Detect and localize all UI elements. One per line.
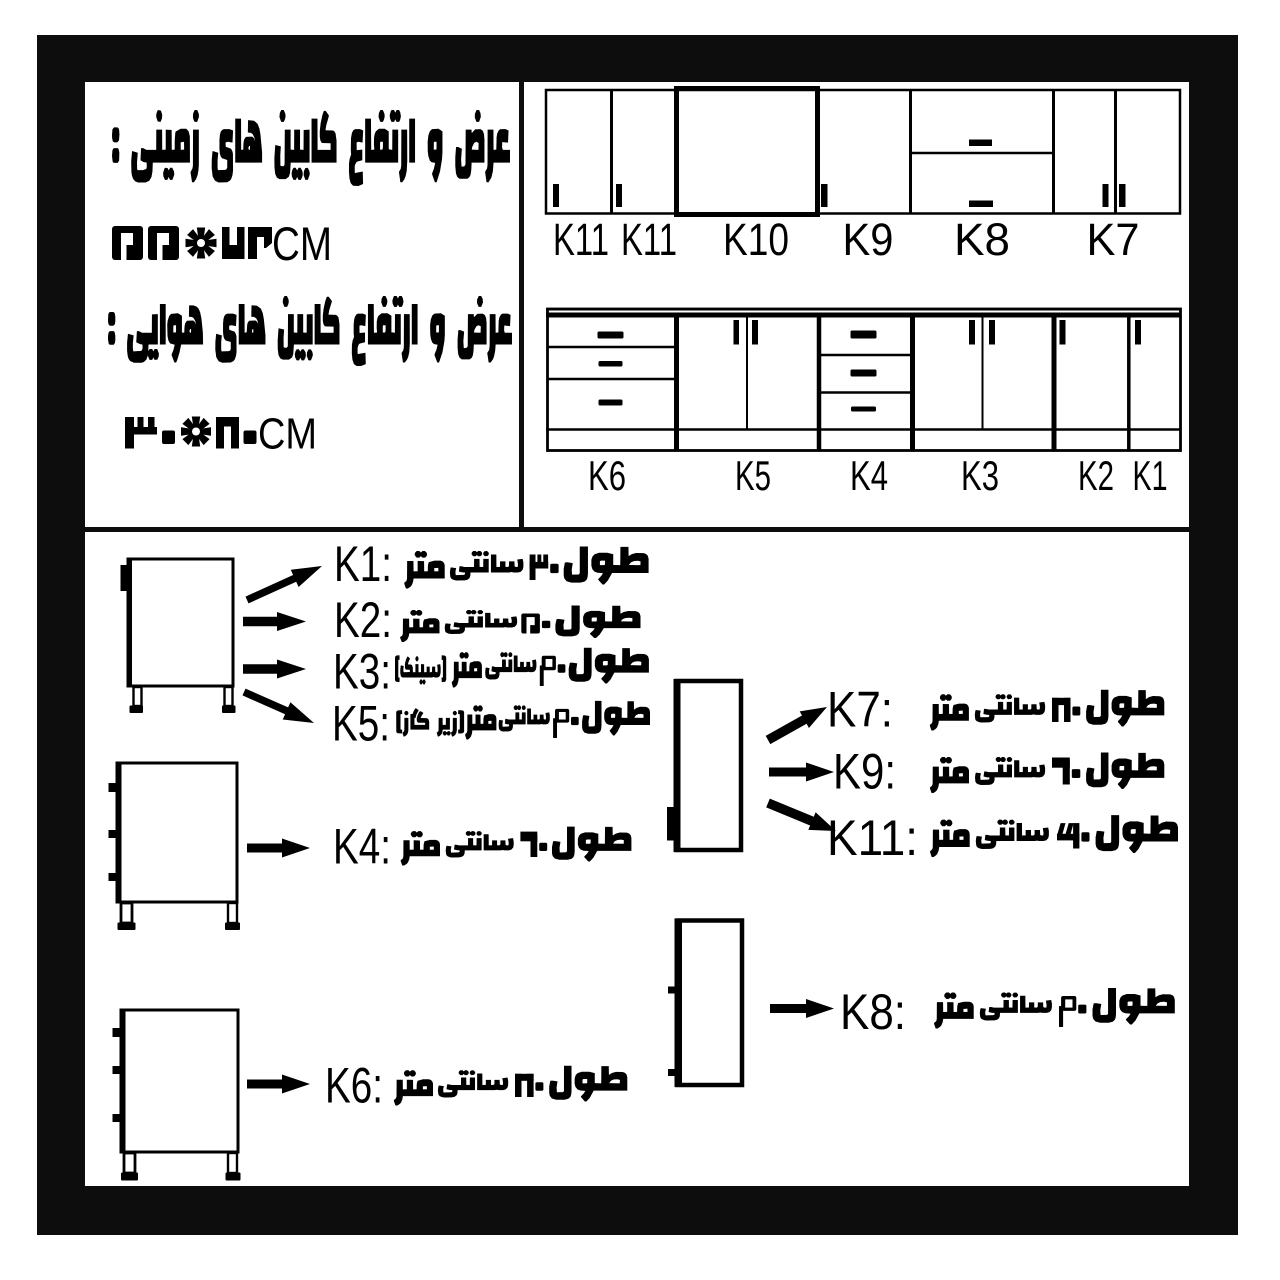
svg-text:K11: K11 [553, 214, 609, 265]
svg-text:K6: K6 [588, 452, 626, 499]
svg-text:CM: CM [258, 410, 317, 459]
svg-text:K1:: K1: [334, 536, 392, 592]
svg-text:K10: K10 [723, 214, 789, 265]
svg-text:K8:: K8: [840, 984, 906, 1040]
svg-text:K6:: K6: [325, 1058, 383, 1114]
svg-text:K11:: K11: [827, 810, 918, 866]
svg-text:K3:: K3: [333, 644, 391, 700]
svg-text:K3: K3 [961, 452, 999, 499]
svg-text:K5:: K5: [332, 696, 390, 752]
svg-text:CM: CM [272, 217, 332, 270]
svg-text:K2: K2 [1078, 452, 1114, 499]
svg-text:K7: K7 [1087, 214, 1140, 265]
svg-text:K2:: K2: [334, 592, 392, 648]
svg-text:K7:: K7: [827, 682, 893, 738]
svg-text:K8: K8 [954, 214, 1010, 265]
svg-text:K5: K5 [735, 452, 771, 499]
svg-text:K11: K11 [621, 214, 677, 265]
svg-text:K1: K1 [1133, 452, 1168, 499]
svg-text:K9: K9 [843, 214, 894, 265]
svg-text:K4: K4 [850, 452, 888, 499]
svg-text:K4:: K4: [333, 819, 391, 875]
svg-text:K9:: K9: [833, 744, 896, 800]
